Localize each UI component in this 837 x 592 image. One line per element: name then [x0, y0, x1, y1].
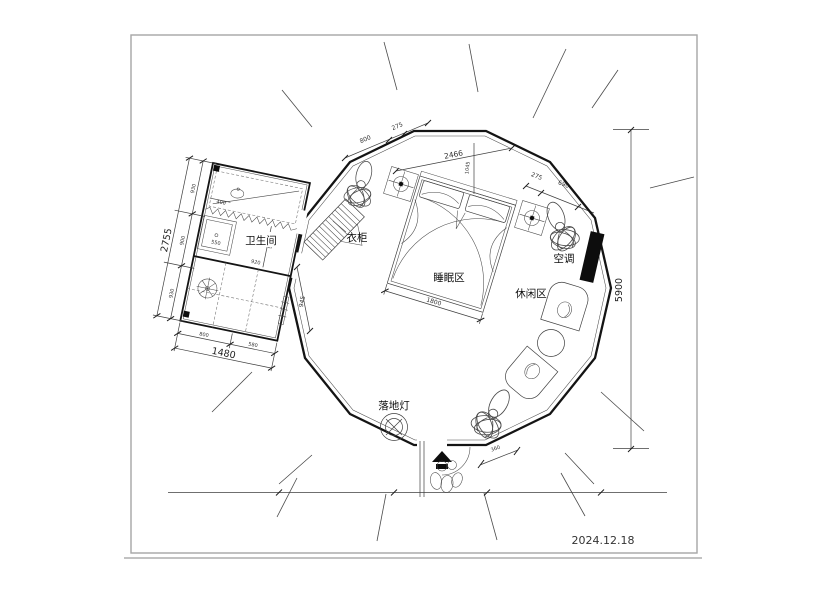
floor-plan-drawing: 5900 800 275 2466 1045 275 690 [0, 0, 837, 592]
label-bathroom: 卫生间 [245, 234, 277, 247]
floor-plan-page: 5900 800 275 2466 1045 275 690 [0, 0, 837, 592]
label-wardrobe: 衣柜 [347, 231, 368, 244]
label-floor-lamp: 落地灯 [378, 399, 410, 412]
label-leisure-area: 休闲区 [515, 287, 547, 300]
dim-overall-height: 5900 [614, 278, 625, 302]
label-air-conditioner: 空调 [554, 252, 575, 265]
drawing-date: 2024.12.18 [572, 534, 635, 547]
label-sleeping-area: 睡眠区 [433, 271, 465, 284]
